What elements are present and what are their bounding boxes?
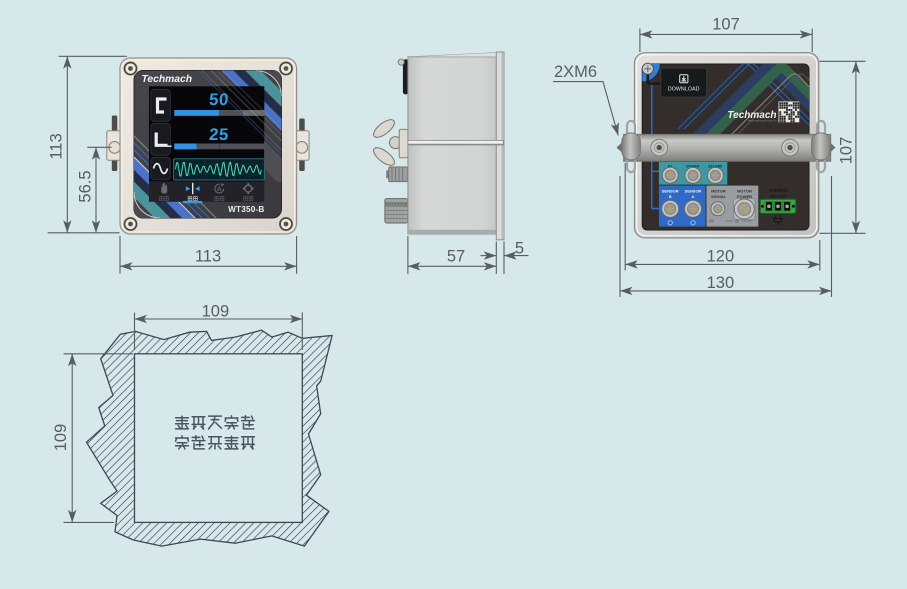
svg-text:POWER: POWER (737, 194, 752, 199)
svg-text:POWER: POWER (769, 188, 788, 194)
svg-text:25: 25 (208, 125, 229, 144)
svg-text:109: 109 (52, 424, 70, 452)
svg-text:SENSOR: SENSOR (662, 188, 679, 193)
svg-text:2XM6: 2XM6 (554, 63, 597, 81)
svg-text:56.5: 56.5 (76, 170, 94, 202)
svg-text:B: B (669, 194, 672, 199)
svg-text:107: 107 (838, 137, 856, 165)
svg-text:113: 113 (195, 248, 221, 266)
svg-text:SIGNAL: SIGNAL (711, 194, 727, 199)
svg-text:109: 109 (202, 303, 230, 321)
svg-text:120: 120 (707, 248, 735, 266)
svg-text:WT350-B: WT350-B (228, 205, 264, 214)
svg-text:A: A (217, 186, 222, 193)
svg-text:57: 57 (447, 248, 465, 266)
svg-text:130: 130 (707, 274, 735, 292)
svg-text:www.techmach.com.cn: www.techmach.com.cn (748, 119, 777, 123)
svg-text:5: 5 (515, 240, 524, 258)
svg-text:107: 107 (712, 16, 740, 34)
svg-text:SENSOR: SENSOR (685, 188, 702, 193)
svg-text:113: 113 (48, 133, 66, 159)
svg-text:A: A (692, 194, 695, 199)
svg-text:Techmach: Techmach (142, 74, 193, 85)
svg-text:DOWNLOAD: DOWNLOAD (668, 86, 700, 92)
svg-text:MOTOR: MOTOR (737, 188, 752, 193)
svg-text:MOTOR: MOTOR (711, 188, 726, 193)
